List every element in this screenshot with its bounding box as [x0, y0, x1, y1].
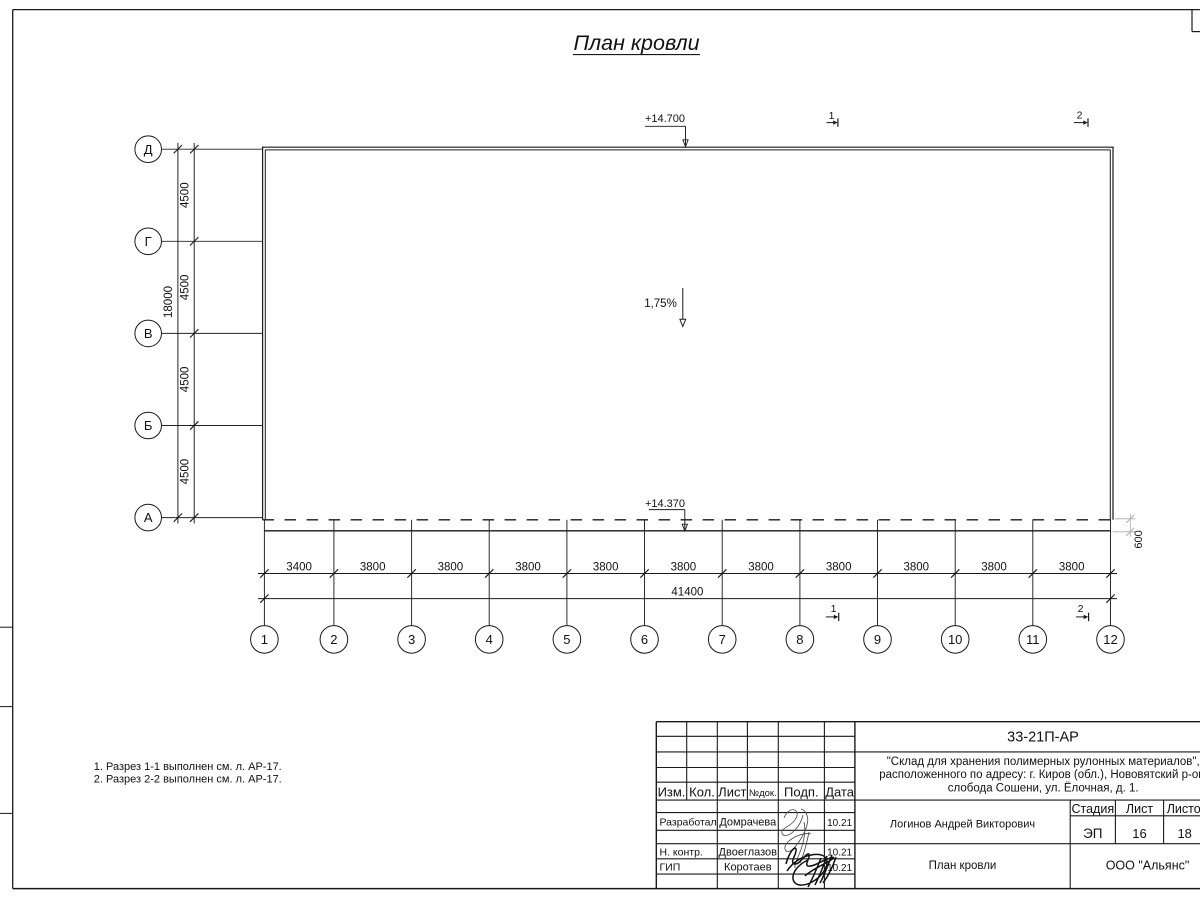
svg-text:1: 1: [831, 603, 837, 615]
svg-text:Листов: Листов: [1167, 802, 1200, 816]
svg-text:3800: 3800: [438, 562, 464, 574]
svg-text:10: 10: [948, 632, 962, 647]
svg-text:слобода Сошени, ул. Ёлочная, д: слобода Сошени, ул. Ёлочная, д. 1.: [948, 783, 1139, 795]
svg-text:№док.: №док.: [749, 788, 777, 799]
svg-text:Разработал: Разработал: [660, 817, 717, 829]
svg-text:9: 9: [874, 632, 881, 647]
svg-text:+14.700: +14.700: [645, 113, 685, 125]
svg-text:3800: 3800: [360, 562, 386, 574]
svg-text:6: 6: [641, 632, 648, 647]
svg-text:3800: 3800: [981, 562, 1007, 574]
svg-text:Лист: Лист: [1126, 802, 1153, 816]
svg-text:Кол.: Кол.: [689, 785, 715, 800]
svg-text:3800: 3800: [826, 562, 852, 574]
svg-text:3800: 3800: [671, 562, 697, 574]
svg-text:"Склад для хранения полимерных: "Склад для хранения полимерных рулонных …: [887, 756, 1200, 768]
svg-text:ЭП: ЭП: [1083, 826, 1102, 841]
svg-text:18000: 18000: [163, 286, 175, 318]
svg-text:4500: 4500: [180, 182, 192, 208]
svg-text:ГИП: ГИП: [660, 862, 681, 874]
svg-text:3400: 3400: [286, 562, 312, 574]
svg-text:41400: 41400: [671, 587, 703, 599]
svg-text:Лист: Лист: [718, 785, 746, 800]
svg-text:1. Разрез 1-1 выполнен см. л.: 1. Разрез 1-1 выполнен см. л. АР-17.: [94, 761, 282, 773]
svg-text:3: 3: [408, 632, 415, 647]
svg-text:ООО "Альянс": ООО "Альянс": [1106, 858, 1190, 872]
svg-text:4500: 4500: [180, 459, 192, 485]
svg-text:расположенного по адресу: г. К: расположенного по адресу: г. Киров (обл.…: [879, 769, 1200, 781]
svg-text:Изм.: Изм.: [658, 785, 686, 800]
svg-text:План кровли: План кровли: [573, 31, 699, 55]
svg-text:7: 7: [719, 632, 726, 647]
svg-text:1: 1: [261, 632, 268, 647]
svg-text:3800: 3800: [748, 562, 774, 574]
svg-text:8: 8: [796, 632, 803, 647]
svg-text:3800: 3800: [515, 562, 541, 574]
svg-text:2: 2: [330, 632, 337, 647]
svg-text:Н. контр.: Н. контр.: [660, 846, 703, 858]
svg-text:16: 16: [1132, 826, 1146, 841]
svg-text:Б: Б: [144, 418, 153, 433]
svg-text:10.21: 10.21: [827, 818, 852, 829]
svg-text:1,75%: 1,75%: [644, 298, 677, 310]
svg-text:12: 12: [1103, 632, 1117, 647]
svg-text:Г: Г: [145, 234, 152, 249]
svg-text:В: В: [144, 326, 153, 341]
svg-text:Домрачева: Домрачева: [719, 817, 777, 829]
svg-text:4: 4: [486, 632, 493, 647]
svg-text:Подп.: Подп.: [784, 785, 819, 800]
svg-text:Двоеглазов: Двоеглазов: [719, 846, 778, 858]
svg-text:А: А: [144, 510, 153, 525]
svg-text:11: 11: [1026, 632, 1040, 647]
svg-text:4500: 4500: [180, 367, 192, 393]
svg-text:18: 18: [1177, 826, 1191, 841]
svg-text:1: 1: [829, 110, 835, 122]
svg-text:600: 600: [1133, 530, 1145, 548]
svg-text:2: 2: [1078, 603, 1084, 615]
svg-text:4500: 4500: [180, 275, 192, 301]
svg-text:33-21П-АР: 33-21П-АР: [1007, 730, 1079, 746]
svg-text:3800: 3800: [1059, 562, 1085, 574]
svg-text:План кровли: План кровли: [929, 860, 997, 872]
svg-text:2. Разрез 2-2 выполнен см. л.: 2. Разрез 2-2 выполнен см. л. АР-17.: [94, 774, 282, 786]
svg-text:Дата: Дата: [825, 785, 855, 800]
svg-text:Коротаев: Коротаев: [724, 862, 772, 874]
svg-text:3800: 3800: [593, 562, 619, 574]
svg-text:5: 5: [563, 632, 570, 647]
svg-text:Стадия: Стадия: [1071, 802, 1114, 816]
svg-text:Д: Д: [144, 142, 153, 157]
svg-text:2: 2: [1077, 110, 1083, 122]
svg-text:Логинов Андрей Викторович: Логинов Андрей Викторович: [890, 819, 1035, 831]
svg-text:+14.370: +14.370: [645, 498, 685, 510]
svg-text:3800: 3800: [904, 562, 930, 574]
